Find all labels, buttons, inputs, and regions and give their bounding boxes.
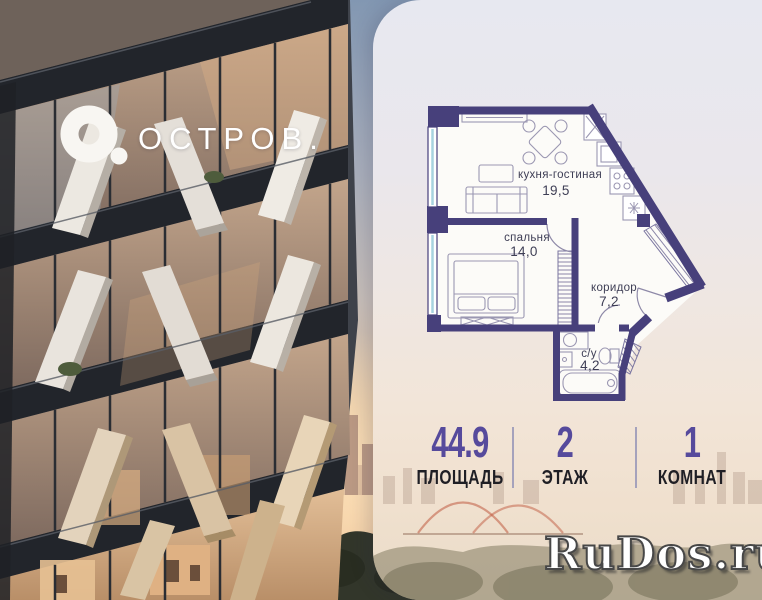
- listing-card: ОСТРОВ.: [0, 0, 762, 600]
- wall-block-diagonal: [637, 214, 650, 227]
- brand-name: ОСТРОВ.: [138, 121, 325, 157]
- stat-area: 44.9 ПЛОЩАДЬ: [404, 424, 516, 490]
- stat-divider: [635, 427, 637, 488]
- stat-divider: [512, 427, 514, 488]
- info-panel: кухня-гостиная 19,5 спальня 14,0 коридор…: [373, 0, 762, 600]
- stat-area-label: ПЛОЩАДЬ: [404, 467, 516, 490]
- room-area-kitchen: 19,5: [542, 183, 569, 198]
- stat-rooms: 1 КОМНАТ: [648, 424, 736, 490]
- room-label-kitchen: кухня-гостиная: [518, 169, 602, 181]
- floor-plan: кухня-гостиная 19,5 спальня 14,0 коридор…: [413, 98, 758, 416]
- stat-floor: 2 ЭТАЖ: [535, 424, 595, 490]
- stat-area-value: 44.9: [404, 424, 516, 462]
- stat-floor-value: 2: [535, 424, 595, 462]
- stat-rooms-value: 1: [648, 424, 736, 462]
- stat-floor-label: ЭТАЖ: [535, 467, 595, 490]
- room-label-corridor: коридор: [591, 282, 637, 294]
- stat-rooms-label: КОМНАТ: [648, 467, 736, 490]
- room-label-bedroom: спальня: [504, 232, 550, 244]
- room-area-bedroom: 14,0: [510, 244, 537, 259]
- tower: [0, 0, 358, 600]
- watermark: RuDos.ru: [544, 527, 762, 580]
- brand-logo: ОСТРОВ.: [58, 103, 325, 175]
- donut-o-icon: [58, 103, 130, 175]
- stats-row: 44.9 ПЛОЩАДЬ 2 ЭТАЖ 1 КОМНАТ: [373, 424, 762, 498]
- room-area-corridor: 7,2: [599, 294, 619, 309]
- room-area-bathroom: 4,2: [580, 358, 600, 373]
